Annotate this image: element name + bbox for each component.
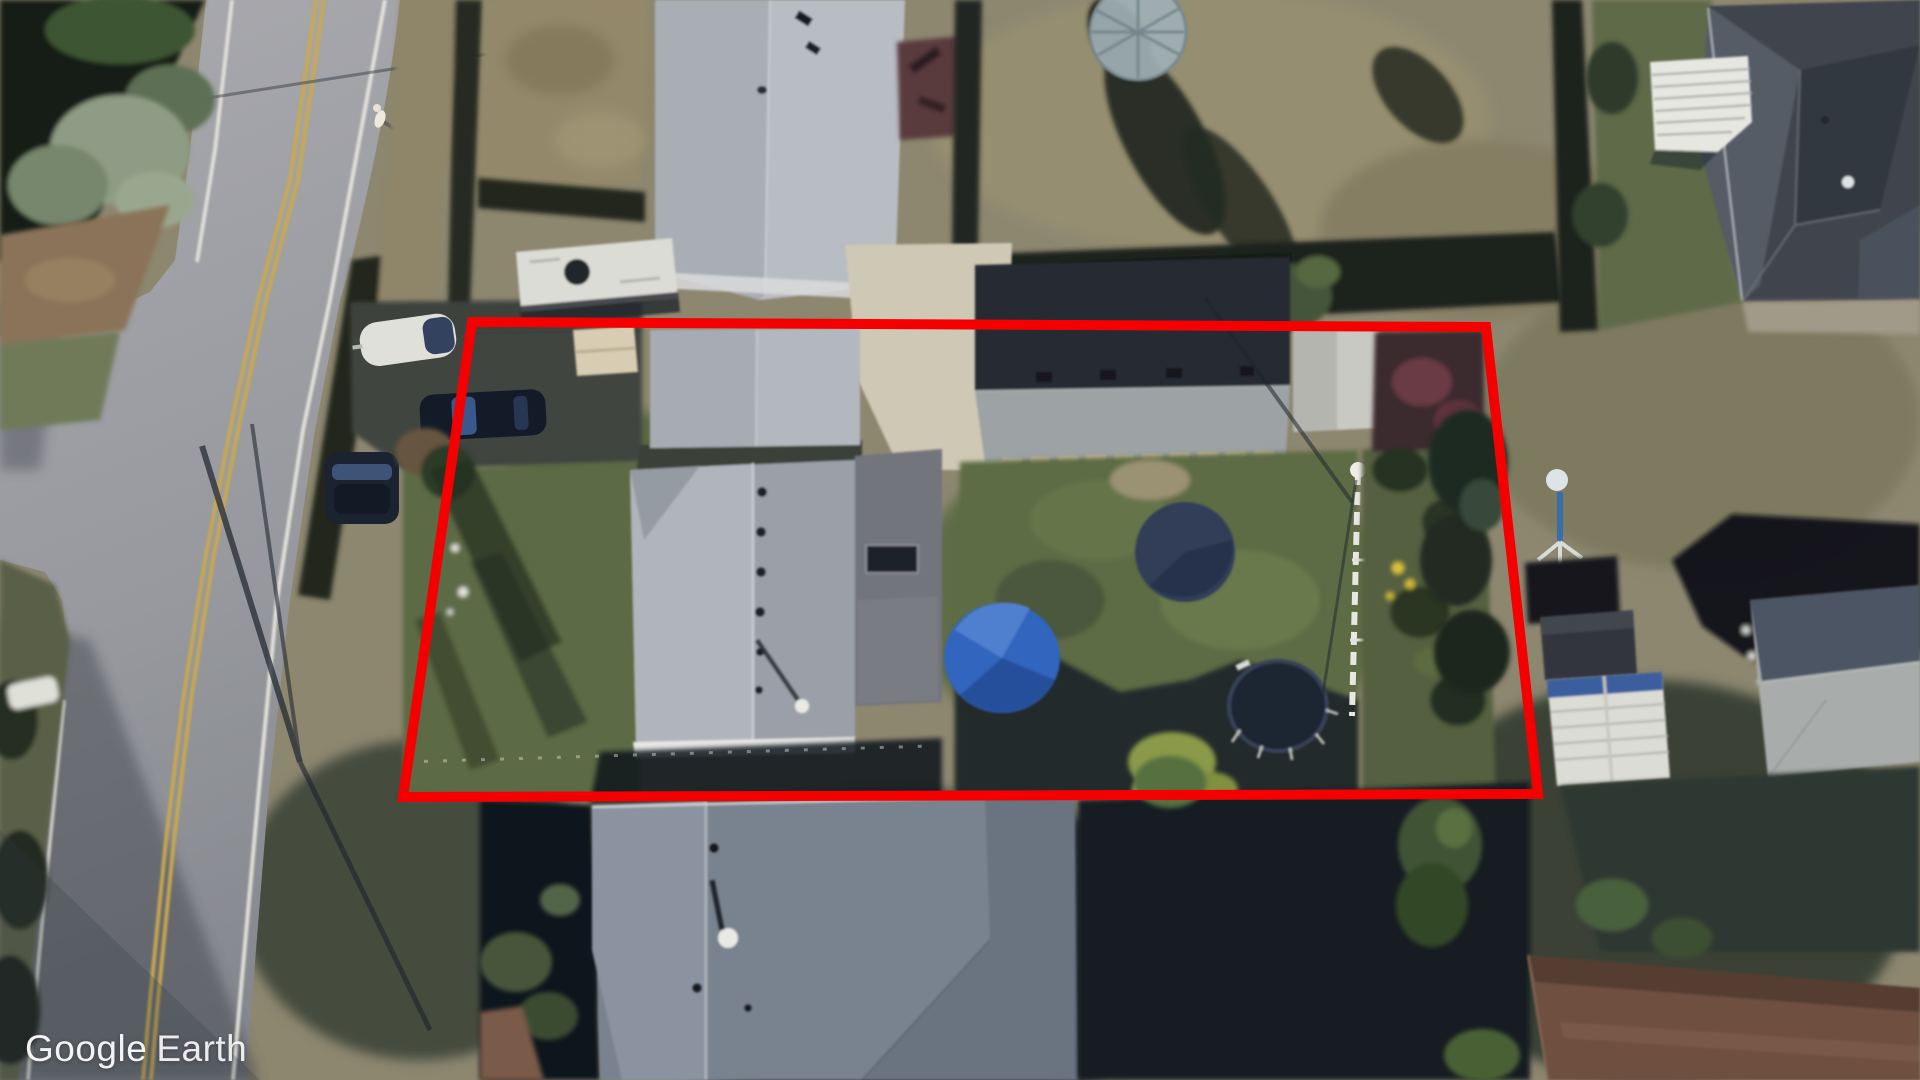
carport-shed — [1293, 324, 1380, 432]
south-house-roof — [592, 795, 1078, 1080]
garden-shed-beige — [573, 326, 638, 376]
google-earth-viewport: GoogleEarth — [0, 0, 1920, 1080]
storage-shed-white — [1547, 672, 1670, 786]
watermark-brand: Google — [25, 1028, 147, 1069]
neighbor-back-lawn — [1560, 766, 1920, 958]
rv-trailer — [516, 238, 680, 326]
long-outbuilding-roof — [975, 257, 1290, 462]
watermark-product: Earth — [156, 1028, 247, 1069]
pool-dome — [944, 603, 1060, 713]
neighbor-house-gray-roof — [1750, 585, 1920, 778]
parked-suv — [325, 452, 399, 524]
chimney — [718, 928, 738, 948]
google-earth-watermark: GoogleEarth — [25, 1028, 247, 1070]
storage-shed-dark — [1540, 610, 1637, 680]
dome-climber — [1090, 0, 1186, 80]
deck-maroon — [897, 36, 962, 140]
round-pool — [1135, 502, 1235, 602]
mansion-front-walk — [1742, 300, 1920, 334]
mansion — [1552, 0, 1920, 334]
hedge-east — [952, 0, 982, 255]
satellite-imagery — [0, 0, 1920, 1080]
mansion-roof — [1700, 0, 1920, 302]
